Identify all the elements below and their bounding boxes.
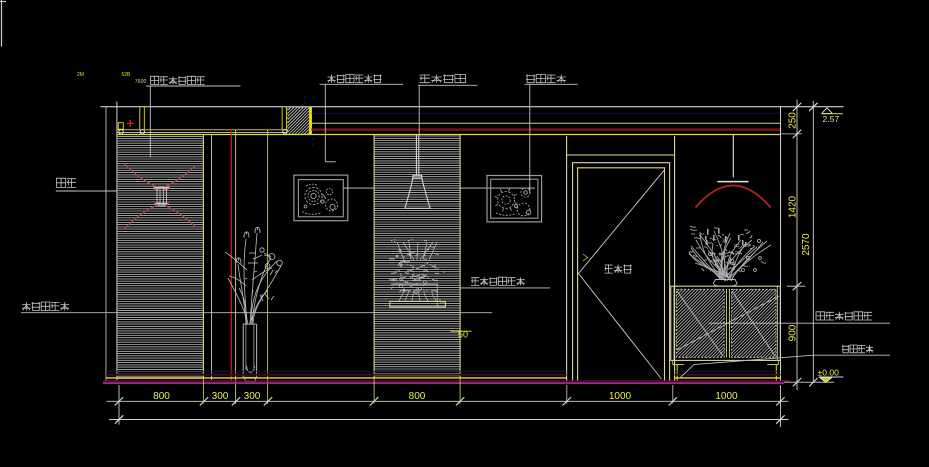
svg-text:900: 900 [788,324,799,341]
svg-text:250: 250 [788,112,799,129]
svg-text:2M: 2M [77,72,84,78]
svg-text:1420: 1420 [788,195,799,218]
svg-text:800: 800 [153,391,170,402]
svg-text:300: 300 [212,391,229,402]
svg-text:52B: 52B [122,72,132,78]
svg-text:50: 50 [458,330,468,340]
svg-text:1000: 1000 [715,391,738,402]
svg-text:7600: 7600 [135,79,147,85]
svg-text:±0.00: ±0.00 [818,367,840,377]
svg-text:800: 800 [409,391,426,402]
svg-text:2570: 2570 [801,233,812,256]
svg-text:300: 300 [244,391,261,402]
svg-text:1000: 1000 [609,391,632,402]
svg-text:2.57: 2.57 [823,114,840,124]
